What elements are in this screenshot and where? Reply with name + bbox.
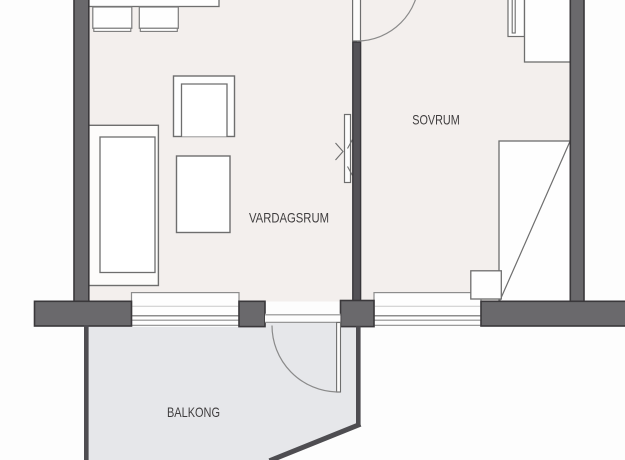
svg-text:BALKONG: BALKONG <box>167 404 220 420</box>
svg-text:SOVRUM: SOVRUM <box>412 112 460 128</box>
svg-text:VARDAGSRUM: VARDAGSRUM <box>249 209 329 225</box>
